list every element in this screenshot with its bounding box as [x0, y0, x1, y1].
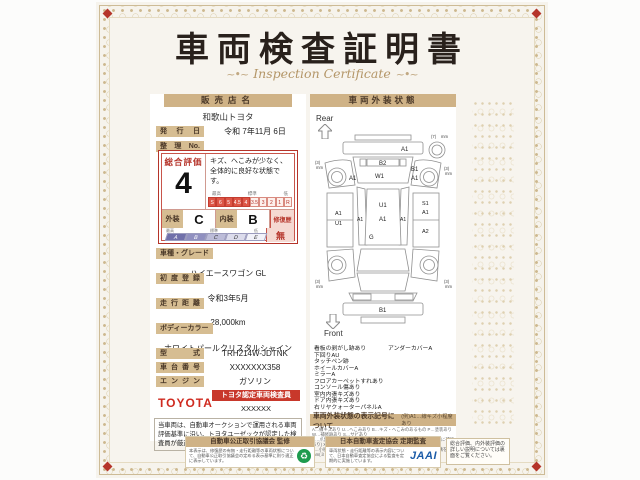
issue-date-value: 令和 7年11月 6日	[210, 126, 300, 138]
mileage-label: 走行距離	[156, 298, 204, 309]
right-rail-code: A1	[400, 217, 406, 223]
vehicle-info-panel: 販売店名 和歌山トヨタ 発行日 令和 7年11月 6日 整理No. 総合評価 4…	[150, 94, 306, 441]
inspector-id: XXXXXX	[212, 404, 300, 413]
rear-text: Rear	[316, 114, 333, 123]
overall-rating-score: 4	[162, 168, 205, 200]
front-bumper-code: B1	[379, 308, 387, 314]
exterior-condition-panel: 車両外装状態 Rear Front	[310, 94, 456, 441]
scale-cell: 4	[242, 197, 250, 207]
appraisal-association-header: 日本自動車査定協会 定期監査	[326, 437, 440, 447]
mm-unit: mm	[445, 171, 452, 176]
model-code-row: 型式 TRH214W-JDTNK	[156, 348, 300, 360]
repair-history-value: 無	[266, 228, 294, 242]
appraisal-association-text: 車両状態・走行距離等の表示内容について、日本自動車査定協会による監査を定期的に実…	[329, 448, 408, 463]
car-diagram-area: Rear Front	[310, 107, 456, 343]
rear-window-code: B2	[379, 161, 387, 167]
scale-cell: R	[284, 197, 292, 207]
fair-trade-council-box: 自動車公正取引協議会 監修 本表示は、修復歴の有無・走行距離等の車両状態について…	[185, 436, 315, 468]
symbol-legend-example: (例)A1…線キズ小程度あり	[401, 413, 453, 427]
remarks-right-column: アンダーカバーA	[388, 346, 454, 412]
flourish-right: ~•~	[391, 68, 418, 81]
grade-scale-row: 最高 標準 低 A B C D E 無	[162, 228, 294, 242]
model-grade-label: 車種・グレード	[156, 248, 213, 259]
scale-cell: 3	[259, 197, 267, 207]
remark-item: アンダーカバーA	[388, 346, 454, 353]
roof-code-1: U1	[379, 203, 387, 209]
right-body-code-3: A2	[422, 229, 429, 235]
car-top-view-diagram: A1 B2 W1 B1 A1 A1 U1 A1 G A1 A1 A1 U1 S1…	[313, 133, 453, 333]
scale-cell: 1	[276, 197, 284, 207]
engine-value: ガソリン	[210, 376, 300, 388]
model-code-label: 型式	[156, 348, 204, 359]
chassis-no-row: 車台番号 XXXXXXX358	[156, 362, 300, 374]
mm-unit: mm	[316, 284, 323, 289]
appraisal-association-box: 日本自動車査定協会 定期監査 車両状態・走行距離等の表示内容について、日本自動車…	[325, 436, 441, 468]
exterior-grade: C	[183, 210, 216, 228]
grade-cell: E	[245, 233, 268, 241]
roof-code-2: A1	[379, 217, 387, 223]
interior-label: 内装	[216, 210, 237, 228]
toyota-logo: TOYOTA	[158, 396, 213, 410]
scale-cell: 3.5	[250, 197, 259, 207]
left-rail-code: A1	[357, 217, 363, 223]
right-rear-code-2: A1	[411, 176, 419, 182]
flourish-left: ~•~	[226, 68, 253, 81]
jaai-logo: JAAI	[410, 450, 437, 462]
chassis-no-value: XXXXXXX358	[210, 362, 300, 374]
first-registration-label: 初度登録	[156, 273, 204, 284]
mm-unit: mm	[441, 134, 448, 139]
repair-history-label: 修復歴	[270, 210, 294, 228]
left-body-code-1: A1	[335, 211, 342, 217]
grade-scale: 最高 標準 低 A B C D E	[162, 228, 266, 242]
scale-cell: 5	[225, 197, 233, 207]
grade-row: 外装 C 内装 B 修復歴	[162, 210, 294, 228]
dealer-name: 和歌山トヨタ	[150, 111, 306, 123]
left-body-code-2: U1	[335, 221, 342, 227]
overall-rating-box: 総合評価 4 キズ、へこみが少なく、全体的に良好な状態です。 最高 標準 低 S…	[158, 150, 298, 244]
overall-score-cell: 総合評価 4	[162, 154, 206, 210]
scale-cell: 4.5	[233, 197, 242, 207]
certificate-card: 車両検査証明書 ~•~ Inspection Certificate ~•~ 販…	[96, 2, 548, 478]
certified-inspector-badge: トヨタ認定車両検査員	[212, 390, 300, 401]
rating-scale: S 6 5 4.5 4 3.5 3 2 1 R	[208, 197, 292, 207]
remarks-list: 看板の剥がし跡あり 下回りAU タッチペン跡 ホイールカバーA ミラーA フロア…	[314, 346, 454, 412]
engine-row: エンジン ガソリン	[156, 376, 300, 388]
overall-rating-label: 総合評価	[162, 154, 205, 168]
page-title: 車両検査証明書	[96, 22, 548, 71]
engine-label: エンジン	[156, 376, 204, 387]
right-rear-code-1: B1	[411, 167, 419, 173]
see-reverse-note: 総合評価、内外装評価の詳しい説明については裏面をご覧ください。	[446, 438, 510, 465]
roof-code-g: G	[369, 235, 374, 241]
interior-grade: B	[237, 210, 270, 228]
exterior-header: 車両外装状態	[310, 94, 456, 107]
model-code-value: TRH214W-JDTNK	[210, 348, 300, 360]
remarks-left-column: 看板の剥がし跡あり 下回りAU タッチペン跡 ホイールカバーA ミラーA フロア…	[314, 346, 388, 412]
fair-trade-council-text: 本表示は、修復歴の有無・走行距離等の車両状態について、自動車公正取引協議会の定め…	[189, 448, 295, 463]
body-color-label: ボディーカラー	[156, 323, 213, 334]
issue-date-label: 発行日	[156, 126, 204, 137]
scale-cell: 6	[216, 197, 224, 207]
spare-tread: (7)	[431, 134, 437, 139]
rear-bumper-code: A1	[401, 147, 409, 153]
right-body-code-2: A1	[422, 210, 429, 216]
scale-cell: S	[208, 197, 216, 207]
fair-trade-council-header: 自動車公正取引協議会 監修	[186, 437, 314, 447]
fair-trade-council-icon: ♻	[297, 449, 311, 463]
tailgate-code: W1	[375, 174, 385, 180]
page-subtitle: Inspection Certificate	[253, 66, 391, 81]
exterior-label: 外装	[162, 210, 183, 228]
page-subtitle-row: ~•~ Inspection Certificate ~•~	[96, 66, 548, 81]
mm-unit: mm	[316, 165, 323, 170]
left-rear-code: A1	[349, 176, 357, 182]
side-scroll-ornament	[472, 98, 514, 426]
symbol-legend-bar: 車両外装状態の表示記号について (例)A1…線キズ小程度あり	[310, 414, 456, 426]
right-body-code-1: S1	[422, 201, 429, 207]
issue-date-row: 発行日 令和 7年11月 6日	[156, 126, 300, 138]
dealer-header: 販売店名	[164, 94, 292, 107]
inspector-row: TOYOTA トヨタ認定車両検査員 XXXXXX	[156, 390, 300, 416]
chassis-no-label: 車台番号	[156, 362, 204, 373]
mm-unit: mm	[445, 284, 452, 289]
scale-cell: 2	[267, 197, 275, 207]
rating-comment: キズ、へこみが少なく、全体的に良好な状態です。	[206, 154, 294, 191]
